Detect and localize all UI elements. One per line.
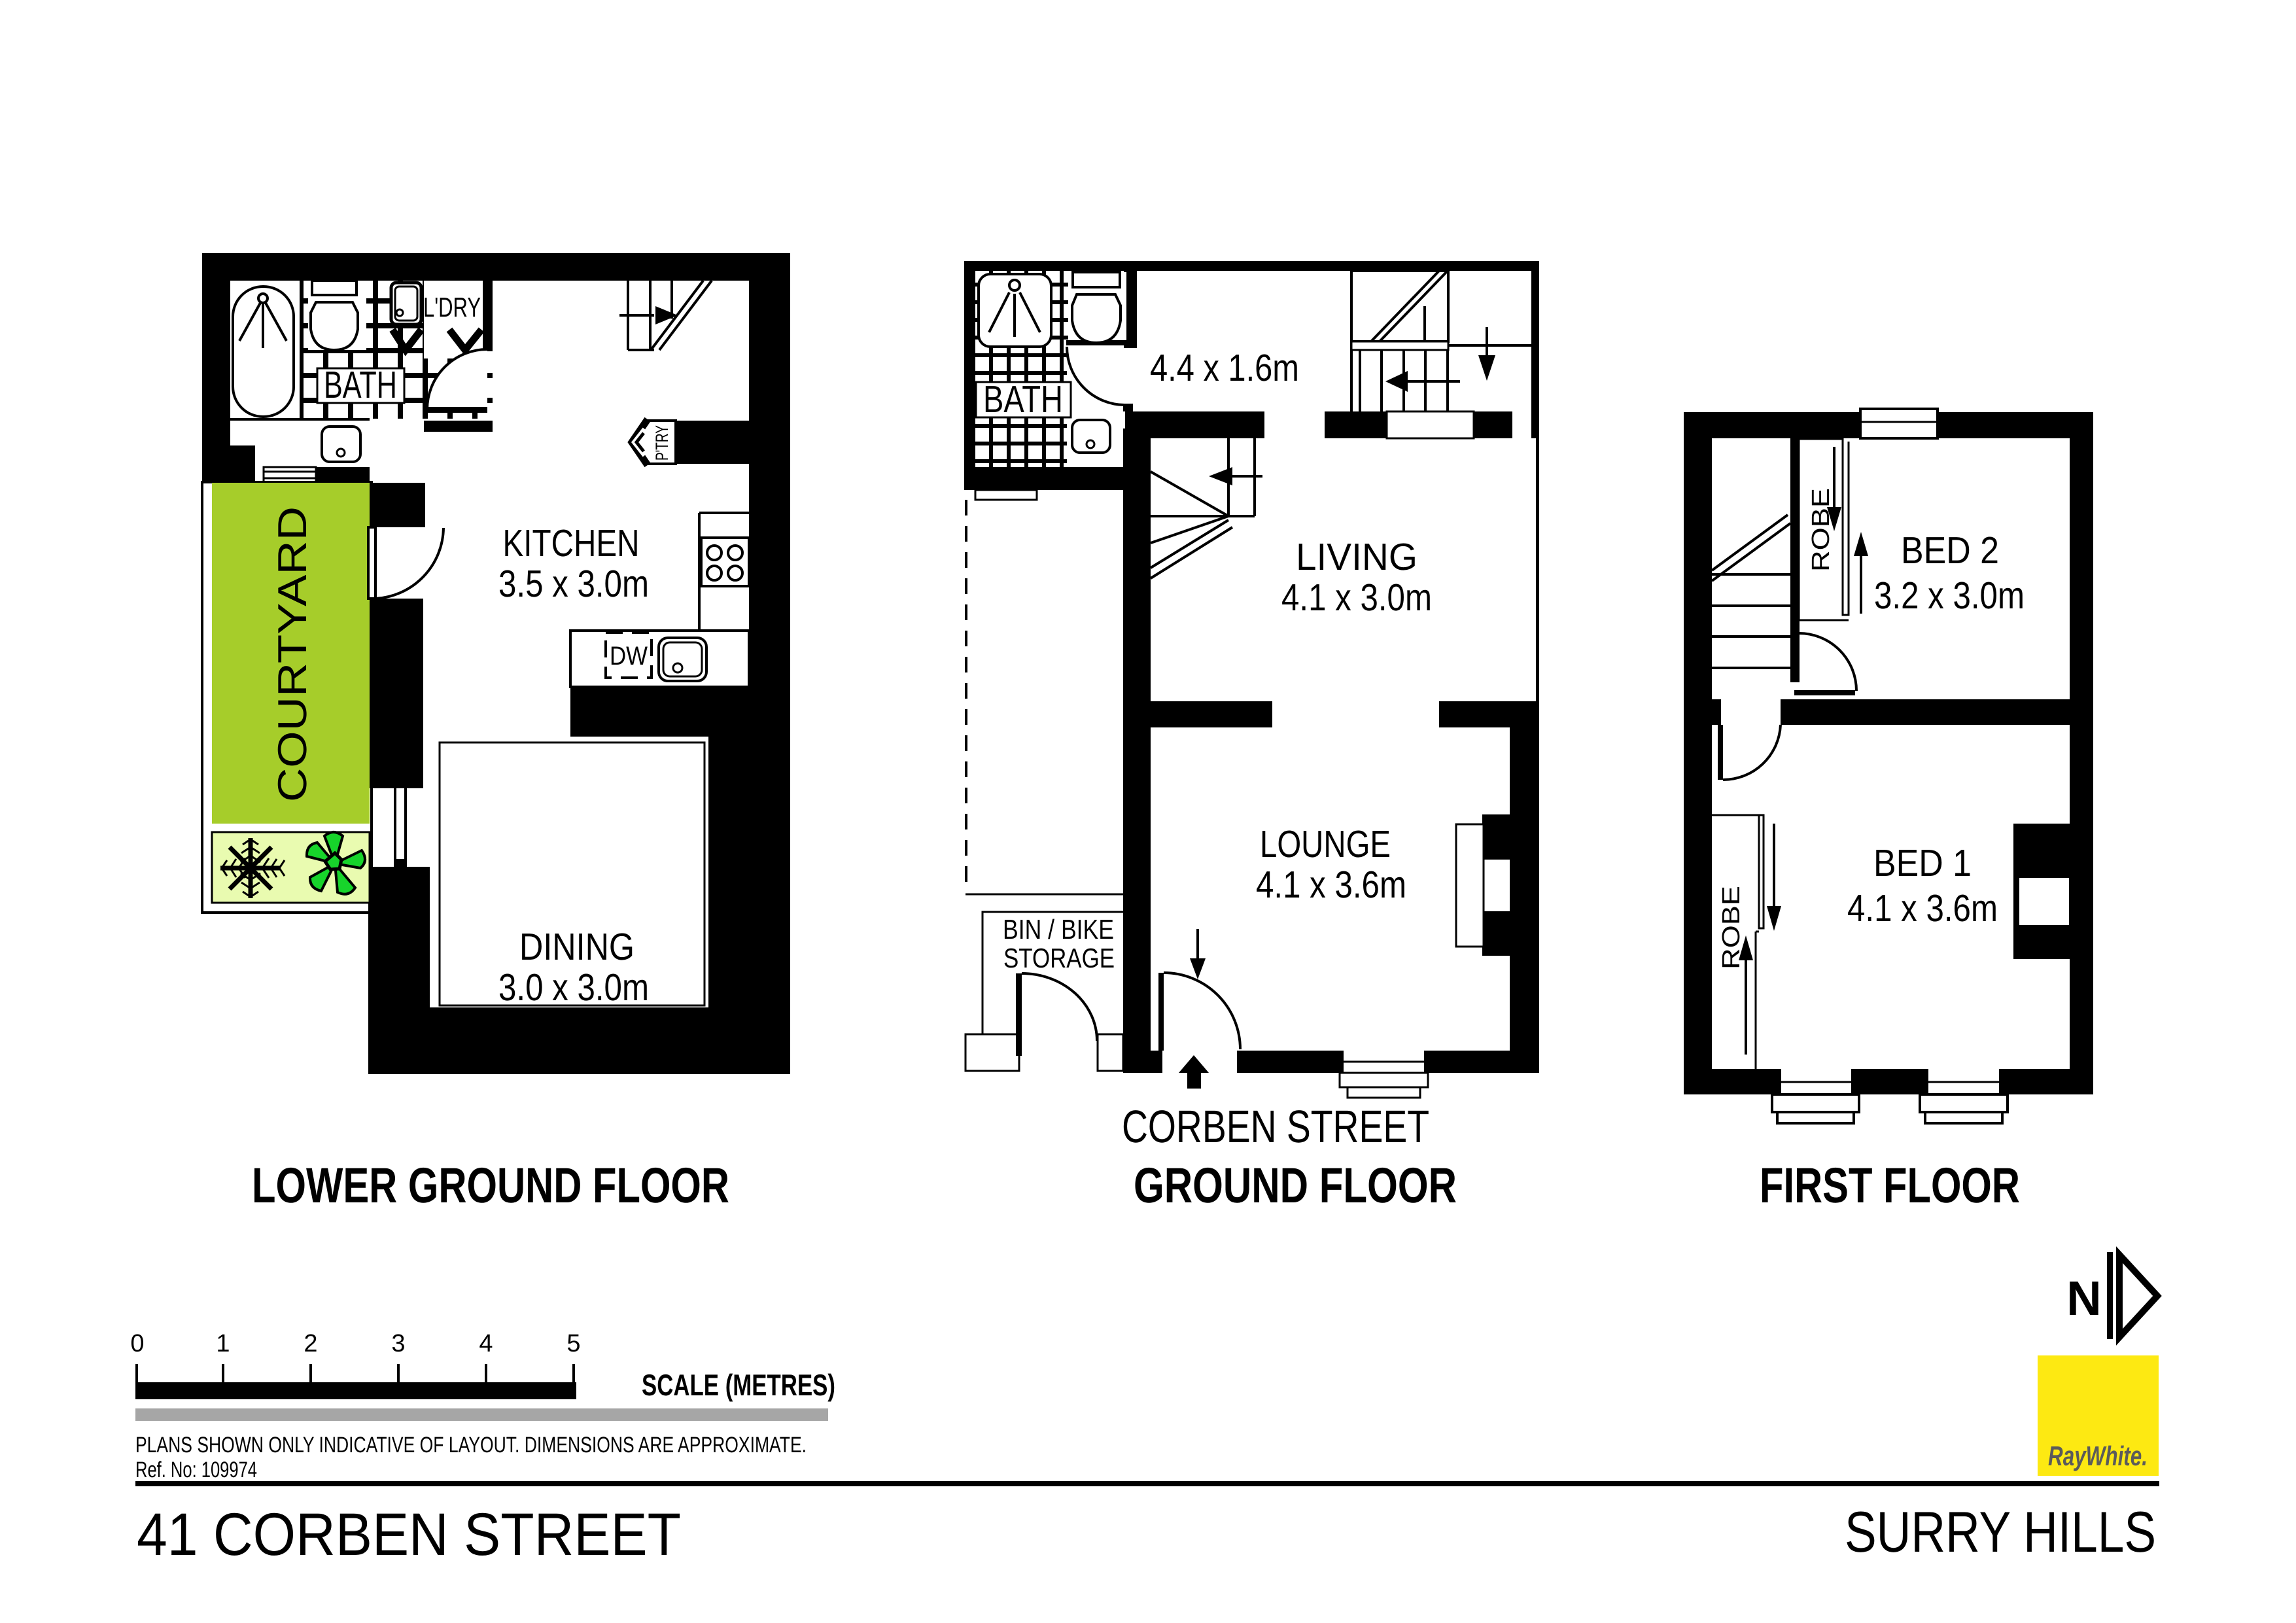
svg-text:2: 2 [304, 1330, 317, 1357]
svg-text:SURRY HILLS: SURRY HILLS [1845, 1499, 2156, 1564]
svg-text:41 CORBEN STREET: 41 CORBEN STREET [137, 1501, 681, 1568]
svg-text:DINING: DINING [519, 926, 635, 968]
svg-text:4.1 x 3.0m: 4.1 x 3.0m [1281, 576, 1432, 619]
svg-text:GROUND FLOOR: GROUND FLOOR [1134, 1158, 1457, 1213]
svg-text:ROBE: ROBE [1807, 488, 1835, 572]
svg-text:P'TRY: P'TRY [652, 425, 672, 461]
svg-text:SCALE (METRES): SCALE (METRES) [642, 1368, 835, 1402]
svg-text:DW: DW [610, 642, 648, 671]
svg-text:BATH: BATH [983, 378, 1063, 421]
svg-text:4: 4 [479, 1330, 493, 1357]
svg-text:BATH: BATH [324, 364, 397, 406]
svg-text:CORBEN STREET: CORBEN STREET [1122, 1101, 1429, 1152]
svg-text:LOWER GROUND FLOOR: LOWER GROUND FLOOR [252, 1158, 729, 1213]
svg-text:RayWhite.: RayWhite. [2048, 1440, 2148, 1471]
svg-text:3.2 x 3.0m: 3.2 x 3.0m [1874, 574, 2025, 617]
svg-text:4.1 x 3.6m: 4.1 x 3.6m [1256, 864, 1406, 906]
svg-text:3: 3 [391, 1330, 405, 1357]
svg-text:L'DRY: L'DRY [423, 292, 481, 323]
svg-text:5: 5 [566, 1330, 580, 1357]
svg-text:BED 1: BED 1 [1873, 842, 1972, 884]
svg-text:LOUNGE: LOUNGE [1260, 823, 1391, 865]
svg-text:4.4 x 1.6m: 4.4 x 1.6m [1150, 347, 1299, 389]
svg-text:STORAGE: STORAGE [1003, 943, 1115, 973]
svg-text:4.1 x 3.6m: 4.1 x 3.6m [1847, 887, 1998, 930]
svg-text:Ref. No: 109974: Ref. No: 109974 [135, 1457, 257, 1482]
svg-text:COURTYARD: COURTYARD [270, 506, 315, 802]
svg-text:0: 0 [130, 1330, 144, 1357]
svg-text:3.0 x 3.0m: 3.0 x 3.0m [498, 966, 649, 1009]
svg-text:N: N [2066, 1271, 2101, 1325]
svg-text:BIN / BIKE: BIN / BIKE [1003, 914, 1114, 945]
svg-text:BED 2: BED 2 [1901, 529, 1999, 572]
svg-text:KITCHEN: KITCHEN [503, 522, 640, 565]
svg-text:PLANS SHOWN ONLY INDICATIVE OF: PLANS SHOWN ONLY INDICATIVE OF LAYOUT. D… [135, 1433, 807, 1457]
svg-text:3.5 x 3.0m: 3.5 x 3.0m [498, 563, 649, 605]
svg-text:LIVING: LIVING [1296, 536, 1418, 578]
svg-text:1: 1 [216, 1330, 230, 1357]
svg-text:FIRST FLOOR: FIRST FLOOR [1760, 1158, 2020, 1213]
